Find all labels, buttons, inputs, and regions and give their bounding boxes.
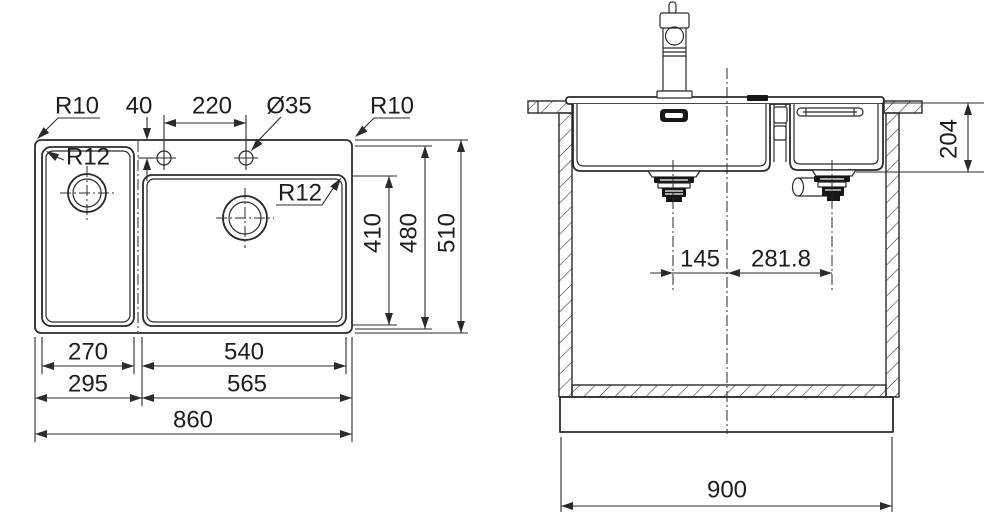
rim-overflow-tab [747,95,768,101]
dim-r12-main: R12 [276,178,341,207]
dim-900-arrow-right [880,502,892,510]
dim-540-label: 540 [224,339,264,366]
tap-offset-arrow-down [143,128,151,140]
dim-295-label: 295 [68,371,108,398]
r10-right-arrow [355,126,368,137]
left-bowl-inner [46,151,130,322]
dim-565: 565 [142,371,352,403]
dim-510-arrow-bottom [457,321,465,333]
r12-left-arrow [46,151,59,161]
dim-r10-left: R10 [37,93,100,140]
main-drain-collar [658,183,690,188]
dim-900: 900 [561,437,892,512]
faucet [657,2,692,98]
top-view: R10 40 220 Ø35 R10 [35,93,468,443]
dim-860-arrow-left [35,430,47,438]
dim-540-arrow-left [142,362,154,370]
dim-145-label: 145 [680,246,720,273]
dim-270: 270 [42,339,134,371]
tap-offset-arrow-up [143,158,151,170]
dim-410-arrow-top [385,176,393,188]
dim-410-arrow-bottom [385,313,393,325]
dim-295-arrow-left [35,394,47,402]
drawing-canvas: R10 40 220 Ø35 R10 [0,0,1000,532]
sink-section [566,95,884,171]
faucet-head [660,13,689,28]
dim-281-label: 281.8 [751,246,811,273]
dim-281-arrow-right [820,269,832,277]
tap-diameter-label: Ø35 [266,93,311,120]
tap-spacing-arrow-left [164,119,176,127]
dim-540: 540 [142,339,346,371]
dim-565-arrow-left [142,394,154,402]
dim-270-arrow-right [122,362,134,370]
main-drain-flange [648,171,700,177]
small-drain-foot [827,196,840,201]
dim-295-arrow-right [130,394,142,402]
r10-left-label: R10 [55,93,99,120]
dim-204-label: 204 [936,119,963,159]
main-bowl-drain [648,171,700,202]
r12-left-label: R12 [66,144,110,171]
tap-spacing-label: 220 [192,93,232,120]
small-bowl-drain [793,170,857,201]
dim-510-arrow-top [457,140,465,152]
dim-540-arrow-right [334,362,346,370]
sink-technical-drawing: R10 40 220 Ø35 R10 [0,0,1000,532]
dim-480-label: 480 [396,213,423,253]
dim-900-label: 900 [707,477,747,504]
dim-480-arrow-top [421,146,429,158]
cabinet-bottom-panel [572,385,886,397]
dim-900-arrow-left [561,502,573,510]
r10-right-label: R10 [370,93,414,120]
dim-410: 410 [352,176,397,325]
r12-main-arrow [330,178,341,191]
dim-565-arrow-right [340,394,352,402]
dim-295: 295 [35,371,142,403]
dim-860: 860 [35,407,352,439]
drain-pipe-cap [793,178,804,196]
dim-410-label: 410 [360,213,387,253]
dim-145-arrow-right [728,269,740,277]
dim-510-label: 510 [434,213,461,253]
dim-204-arrow-top [964,103,972,115]
overflow-slot [665,113,683,118]
faucet-lever-pin [669,2,676,14]
dim-drain-offsets: 145 281.8 [650,246,832,278]
side-view: 204 145 281.8 900 [528,2,984,512]
dim-860-label: 860 [173,407,213,434]
faucet-base [657,91,692,98]
r12-main-label: R12 [278,180,322,207]
small-drain-body [822,187,844,196]
dim-204-arrow-bottom [964,160,972,172]
tap-offset-label: 40 [126,93,153,120]
dim-r10-right: R10 [355,93,414,138]
cabinet-wall-right [886,113,899,397]
dim-270-label: 270 [68,339,108,366]
dim-565-label: 565 [227,371,267,398]
dim-480-arrow-bottom [421,317,429,329]
main-drain-foot [666,197,682,202]
cabinet-wall-left [559,113,572,397]
dim-860-arrow-right [340,430,352,438]
small-drain-flange [812,170,856,176]
dim-270-arrow-left [42,362,54,370]
faucet-column [663,27,686,91]
divider-clip-upper [774,107,787,123]
tap-spacing-arrow-right [234,119,246,127]
dim-145-arrow-left [661,269,673,277]
dim-tap-diameter: Ø35 [251,93,312,152]
sink-rim [566,97,884,104]
divider-clip-lower [774,126,786,140]
main-drain-body [662,188,686,197]
left-bowl [42,147,134,326]
tap-holes [152,146,258,170]
r10-left-leader [40,118,100,136]
